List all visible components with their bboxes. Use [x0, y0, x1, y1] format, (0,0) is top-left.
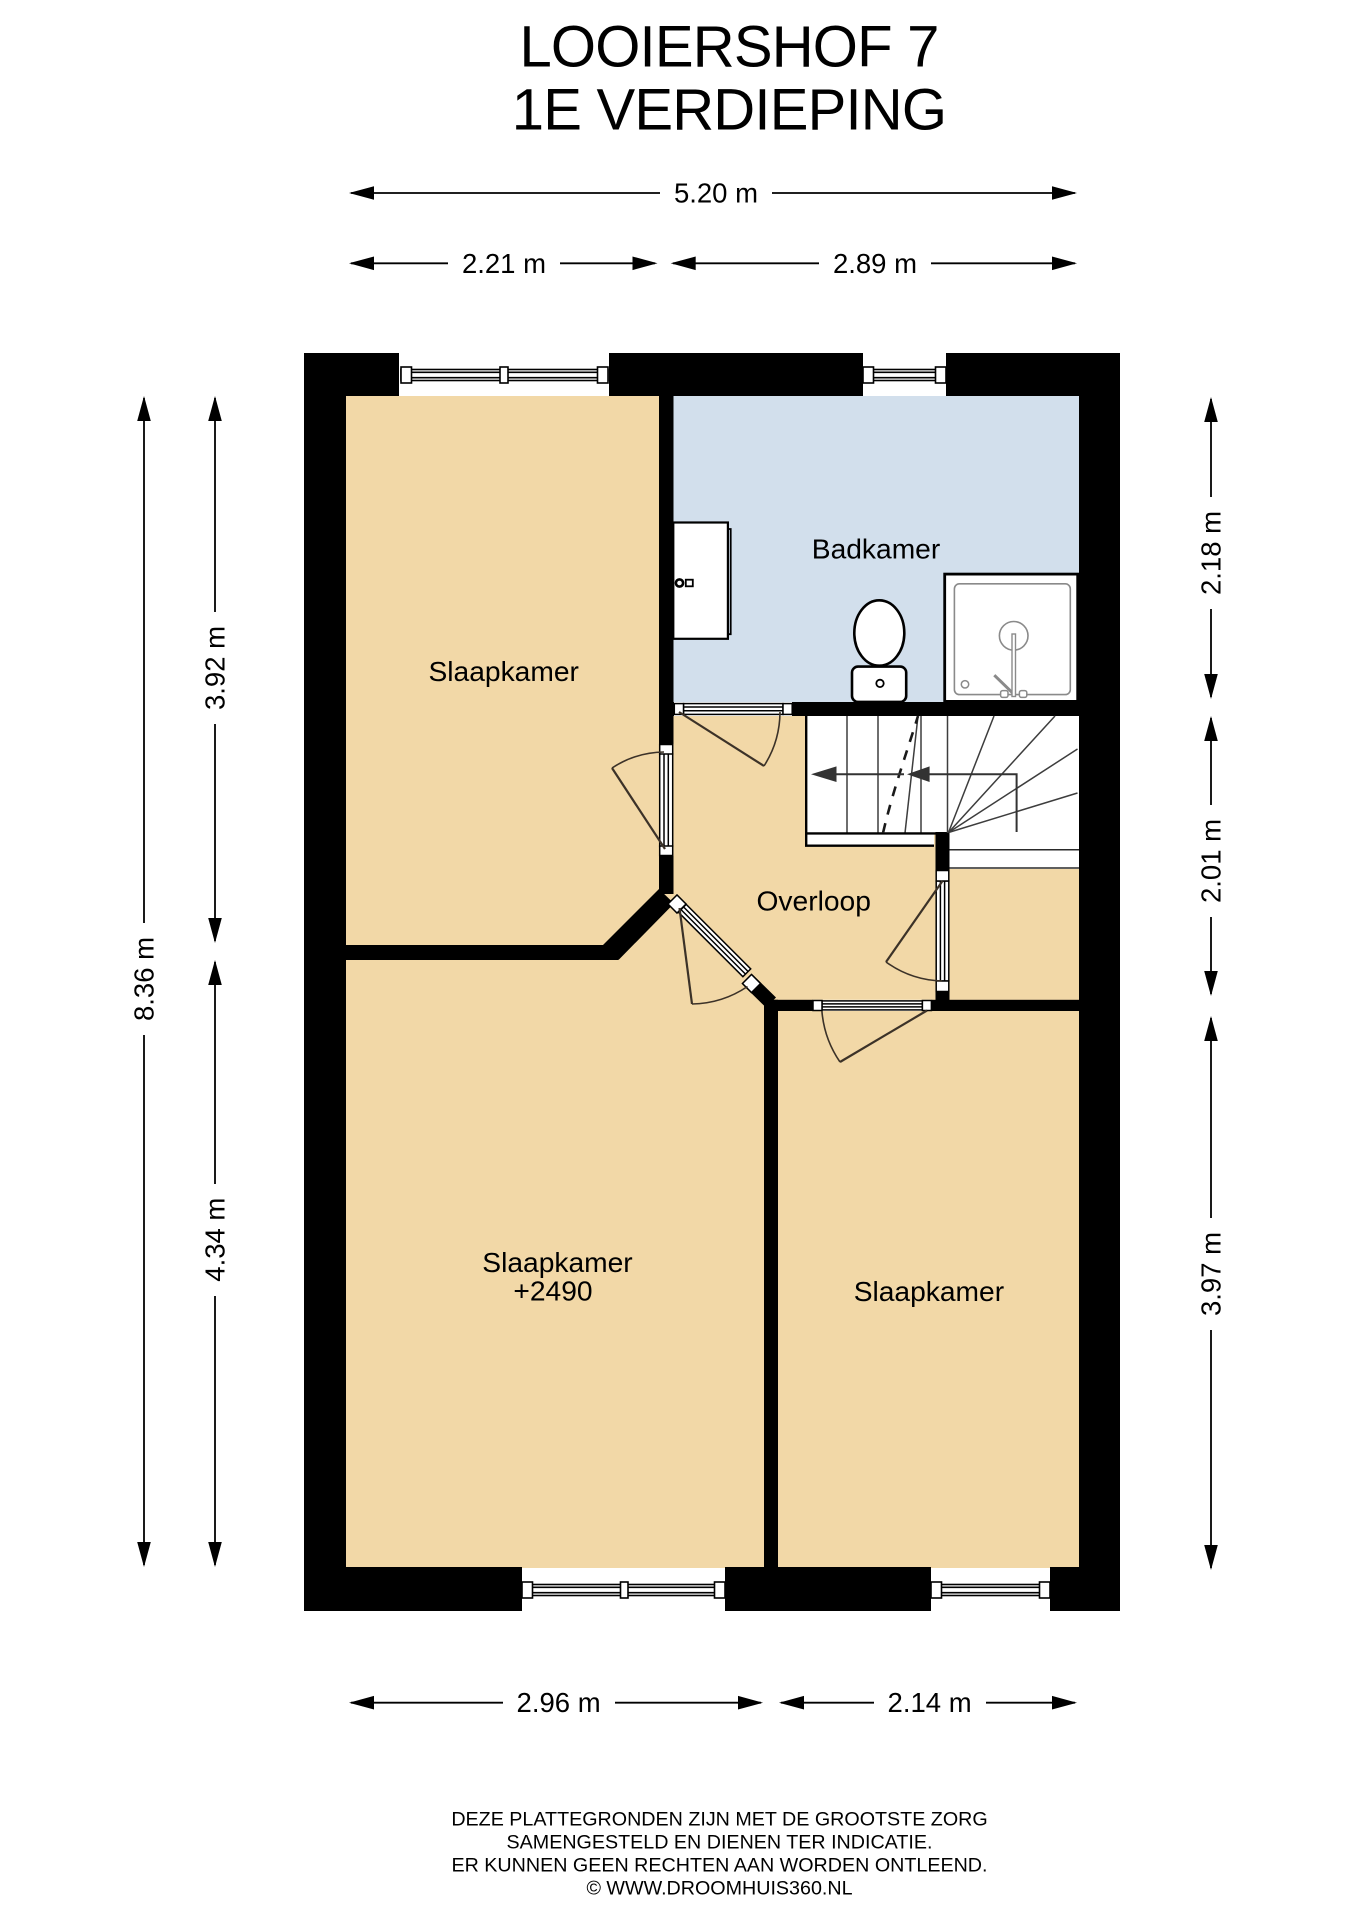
svg-text:2.18 m: 2.18 m [1196, 511, 1227, 595]
svg-text:Badkamer: Badkamer [812, 533, 940, 565]
svg-text:3.97 m: 3.97 m [1196, 1232, 1227, 1316]
svg-text:+2490: +2490 [513, 1275, 592, 1307]
svg-text:1E VERDIEPING: 1E VERDIEPING [512, 78, 946, 143]
svg-text:3.92 m: 3.92 m [200, 626, 231, 710]
svg-text:Slaapkamer: Slaapkamer [428, 655, 578, 687]
svg-text:SAMENGESTELD EN DIENEN TER IND: SAMENGESTELD EN DIENEN TER INDICATIE. [507, 1832, 933, 1854]
svg-text:2.14 m: 2.14 m [888, 1687, 972, 1718]
svg-text:DEZE PLATTEGRONDEN ZIJN MET DE: DEZE PLATTEGRONDEN ZIJN MET DE GROOTSTE … [451, 1809, 987, 1831]
svg-text:2.96 m: 2.96 m [517, 1687, 601, 1718]
svg-text:Slaapkamer: Slaapkamer [854, 1275, 1004, 1307]
svg-text:2.21 m: 2.21 m [462, 248, 546, 279]
svg-text:LOOIERSHOF 7: LOOIERSHOF 7 [519, 15, 938, 80]
svg-text:4.34 m: 4.34 m [200, 1198, 231, 1282]
svg-text:ER KUNNEN GEEN RECHTEN AAN WOR: ER KUNNEN GEEN RECHTEN AAN WORDEN ONTLEE… [451, 1854, 987, 1876]
svg-text:8.36 m: 8.36 m [129, 937, 160, 1021]
svg-text:2.89 m: 2.89 m [833, 248, 917, 279]
svg-text:Slaapkamer: Slaapkamer [482, 1246, 632, 1278]
svg-text:2.01 m: 2.01 m [1196, 819, 1227, 903]
svg-text:© WWW.DROOMHUIS360.NL: © WWW.DROOMHUIS360.NL [586, 1877, 852, 1899]
svg-text:Overloop: Overloop [757, 885, 871, 917]
svg-text:5.20 m: 5.20 m [674, 178, 758, 209]
